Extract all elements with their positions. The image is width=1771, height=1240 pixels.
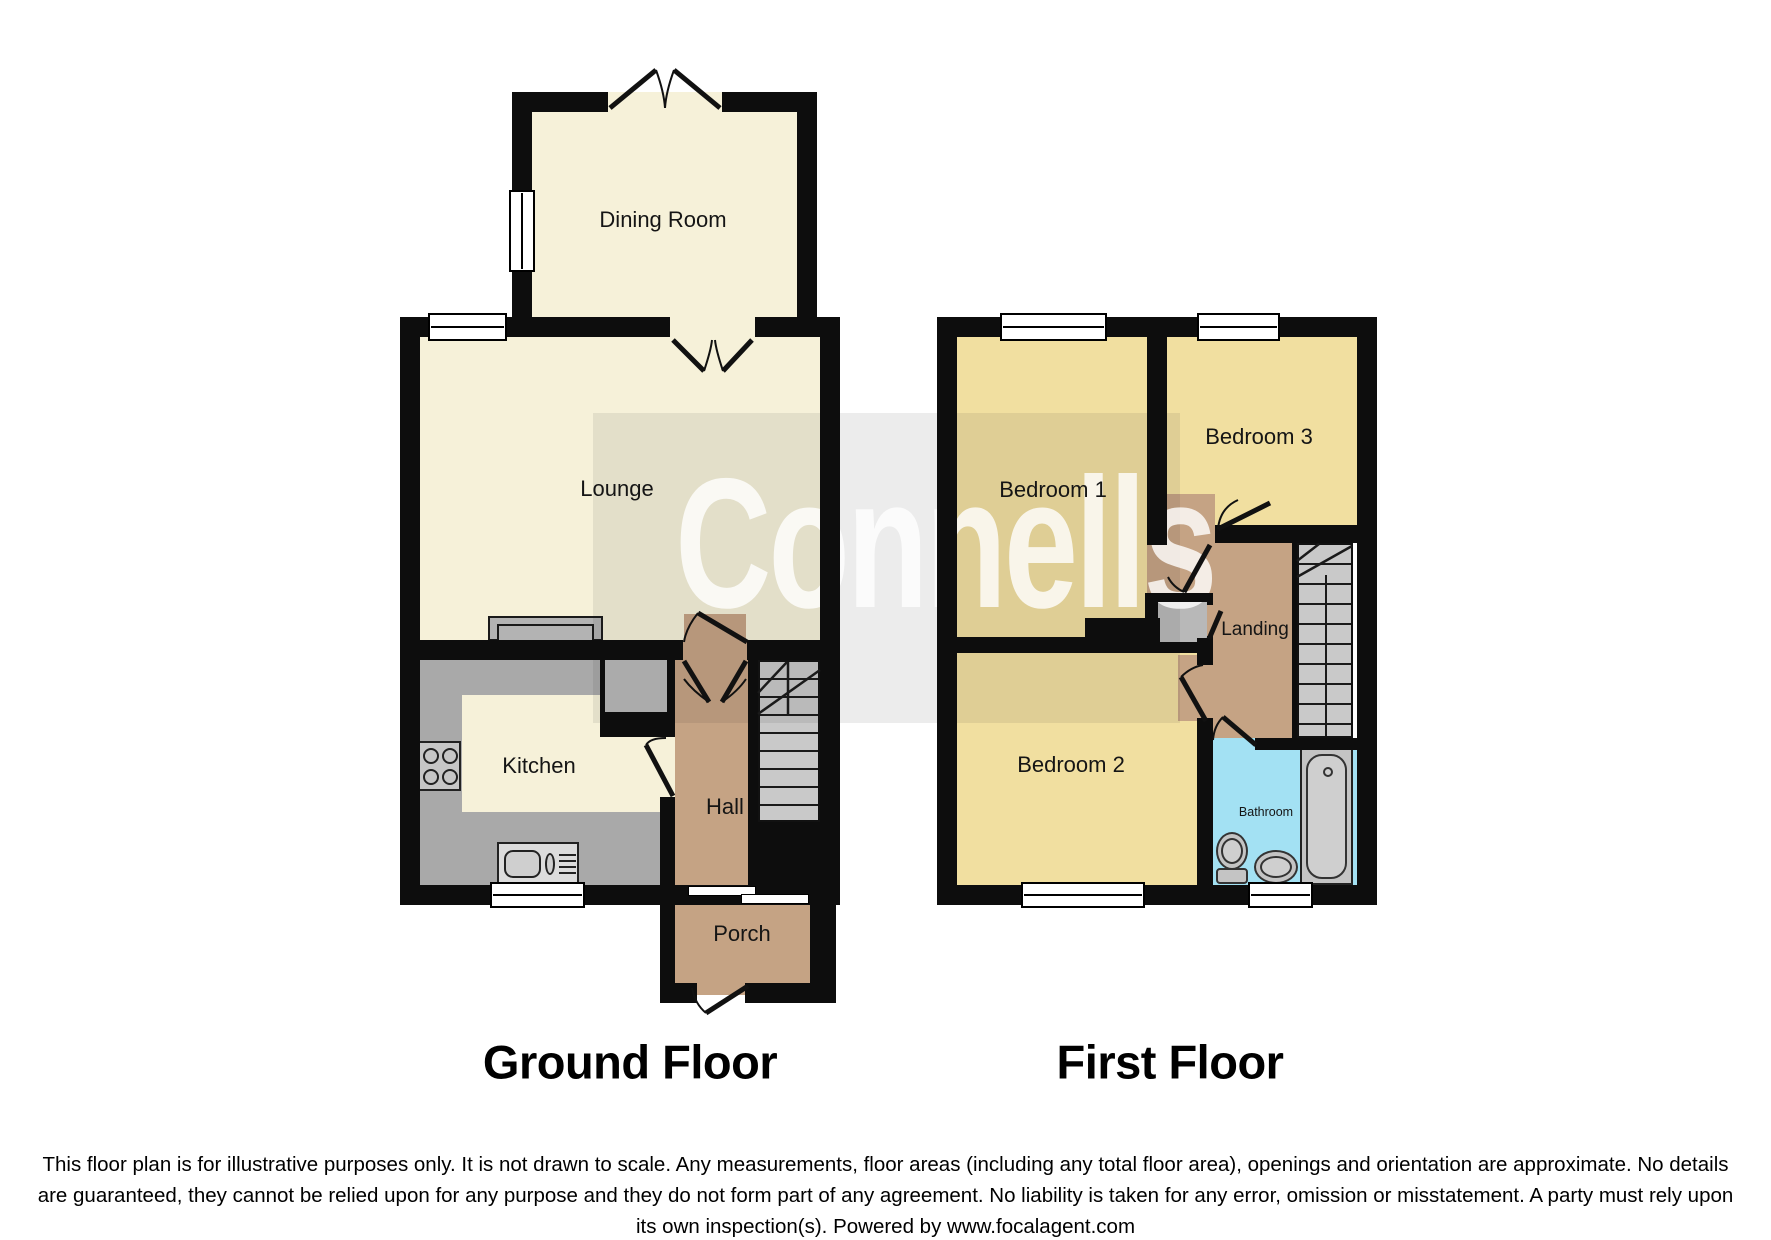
wall (937, 317, 957, 905)
hob-burner (423, 748, 439, 764)
sink-drainer (559, 866, 576, 868)
wall (512, 270, 532, 317)
wall (1145, 885, 1248, 905)
wall (600, 712, 675, 737)
wall (1147, 337, 1167, 545)
wall (400, 640, 683, 660)
window (1197, 313, 1280, 341)
wash-basin-inner (1260, 856, 1292, 878)
wall (1145, 593, 1158, 650)
floor-plan: Connells (0, 0, 1771, 1240)
window-glazing-line (431, 326, 504, 328)
room-landing-lower (1213, 653, 1292, 748)
window (428, 313, 507, 341)
sink-drainer (559, 854, 576, 856)
sink-drainer (559, 860, 576, 862)
floor-title-first: First Floor (1057, 1035, 1284, 1090)
bath (1300, 748, 1353, 885)
sink-drainer (559, 872, 576, 874)
toilet-bowl-inner (1221, 838, 1243, 864)
wall (667, 660, 675, 712)
wall (400, 317, 420, 905)
hob-burner (423, 769, 439, 785)
staircase-first (1297, 543, 1353, 738)
hob (417, 741, 461, 791)
room-label-bathroom: Bathroom (1239, 805, 1293, 819)
window (1248, 882, 1313, 908)
window (1000, 313, 1107, 341)
room-label-landing: Landing (1221, 619, 1289, 641)
room-label-bedroom-1: Bedroom 1 (999, 477, 1107, 503)
fireplace (488, 616, 603, 641)
bath-plughole (1323, 767, 1333, 777)
window (1021, 882, 1145, 908)
sink-tap (545, 853, 555, 875)
window-glazing-line (1003, 326, 1104, 328)
wall (600, 660, 605, 712)
wall (748, 822, 840, 905)
hob-burner (442, 748, 458, 764)
floor-title-ground: Ground Floor (483, 1035, 777, 1090)
wall (797, 92, 817, 337)
wall (748, 660, 758, 822)
window-glazing-line (1200, 326, 1277, 328)
fireplace-inner (497, 624, 594, 641)
wall (1215, 525, 1357, 543)
wall (507, 317, 670, 337)
window-glazing-line (521, 193, 523, 269)
wall (937, 885, 1021, 905)
room-label-lounge: Lounge (580, 476, 653, 502)
wall (660, 797, 675, 885)
room-label-kitchen: Kitchen (502, 753, 575, 779)
wall (400, 885, 490, 905)
wall (1107, 317, 1197, 337)
wall (585, 885, 675, 905)
wall (512, 92, 532, 192)
wall (660, 983, 697, 1003)
hob-burner (442, 769, 458, 785)
window-glazing-line (493, 894, 582, 896)
wall (747, 640, 840, 660)
wall (1207, 593, 1213, 605)
room-label-porch: Porch (713, 921, 770, 947)
wall (1255, 738, 1377, 750)
toilet-cistern (1216, 868, 1248, 884)
window (490, 882, 585, 908)
wall (820, 317, 840, 905)
room-label-hall: Hall (706, 794, 744, 820)
wall (1197, 718, 1213, 885)
room-label-bedroom-2: Bedroom 2 (1017, 752, 1125, 778)
window-glazing-line (1251, 894, 1310, 896)
wall (745, 983, 836, 1003)
room-label-dining-room: Dining Room (599, 207, 726, 233)
window (509, 190, 535, 272)
room-label-bedroom-3: Bedroom 3 (1205, 424, 1313, 450)
wall (1197, 638, 1213, 665)
wall (1357, 317, 1377, 905)
window-glazing-line (1024, 894, 1142, 896)
wall (1313, 885, 1377, 905)
wall (1292, 543, 1297, 738)
staircase-center-line (1325, 575, 1327, 736)
disclaimer: This floor plan is for illustrative purp… (26, 1150, 1746, 1240)
kitchen-sink (497, 842, 579, 884)
sliding-door-panel (741, 894, 809, 904)
sink-basin (504, 850, 541, 878)
